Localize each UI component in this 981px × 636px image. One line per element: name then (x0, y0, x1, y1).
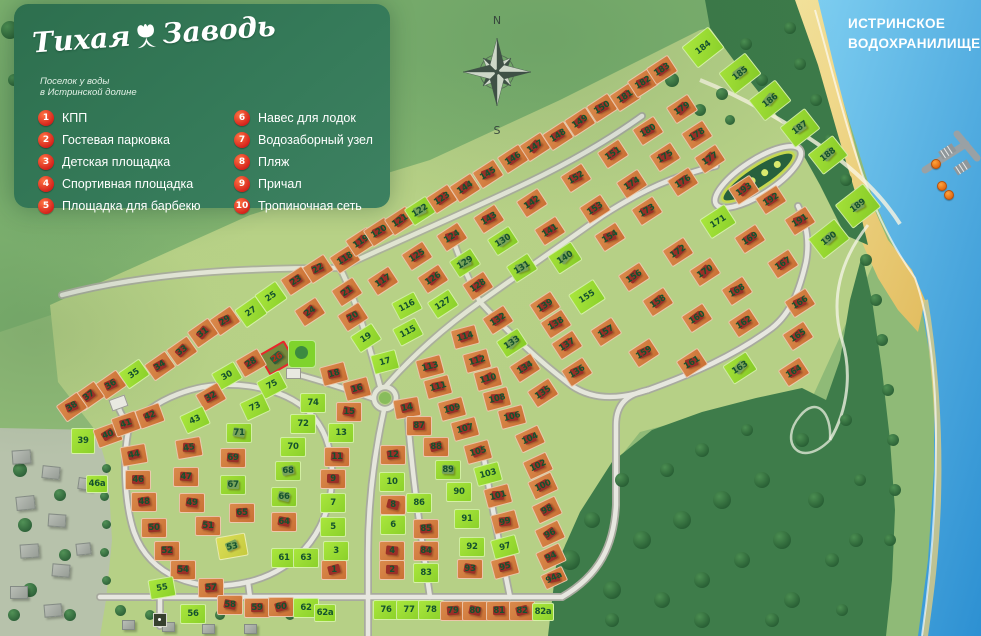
lot-number: 47 (180, 472, 191, 482)
lot-number: 17 (378, 356, 391, 369)
lot-number: 126 (423, 270, 443, 288)
lot-number: 147 (525, 138, 545, 156)
lot-number: 111 (429, 380, 448, 394)
lot-90[interactable]: 90 (446, 482, 472, 502)
tree (810, 94, 822, 106)
lot-12[interactable]: 12 (380, 445, 406, 465)
lot-number: 68 (282, 466, 293, 476)
tree-icon (295, 346, 308, 359)
tree (734, 552, 750, 568)
lot-number: 116 (397, 298, 417, 315)
lot-number: 152 (566, 169, 586, 187)
lot-10[interactable]: 10 (379, 472, 405, 492)
tree (836, 604, 848, 616)
lot-number: 26 (270, 351, 285, 365)
lot-number: 122 (410, 202, 430, 220)
lot-number: 135 (533, 384, 553, 402)
lot-number: 58 (224, 600, 235, 610)
outside-house (51, 563, 70, 578)
tree (102, 520, 111, 529)
lot-3[interactable]: 3 (323, 541, 349, 561)
lot-51[interactable]: 51 (195, 516, 221, 536)
legend-item-label: Спортивная площадка (62, 177, 193, 191)
lot-number: 11 (331, 452, 342, 462)
outside-house (48, 513, 67, 527)
legend-item-5: 5Площадка для барбекю (38, 198, 210, 214)
lot-number: 10 (386, 477, 397, 487)
lot-number: 184 (693, 38, 712, 56)
lot-number: 69 (227, 453, 238, 463)
outside-house (20, 543, 40, 558)
lot-46a[interactable]: 46a (86, 475, 108, 493)
legend-number-badge: 9 (234, 176, 250, 192)
lot-number: 95 (498, 561, 511, 574)
tree (54, 489, 66, 501)
lot-number: 83 (420, 568, 431, 578)
lot-number: 65 (236, 508, 247, 518)
lot-number: 97 (498, 541, 511, 554)
legend-item-10: 10Тропиночная сеть (234, 198, 406, 214)
legend-number-badge: 7 (234, 132, 250, 148)
lot-83[interactable]: 83 (413, 563, 439, 583)
lot-number: 153 (585, 200, 605, 218)
tree (854, 474, 866, 486)
legend-item-3: 3Детская площадка (38, 154, 210, 170)
lot-number: 55 (156, 582, 169, 594)
lot-88[interactable]: 88 (423, 437, 449, 457)
tree (889, 484, 901, 496)
beach-marker-icon (931, 159, 941, 169)
legend-item-label: Гостевая парковка (62, 133, 170, 147)
legend-number-badge: 2 (38, 132, 54, 148)
legend-item-label: КПП (62, 111, 87, 125)
tree (605, 613, 619, 627)
lot-87[interactable]: 87 (406, 416, 432, 436)
tree (584, 512, 600, 528)
tree (784, 592, 800, 608)
outside-house (122, 620, 135, 630)
lot-number: 86 (413, 498, 424, 508)
tree (849, 533, 863, 547)
lot-number: 186 (760, 91, 779, 109)
legend-number-badge: 3 (38, 154, 54, 170)
lot-number: 92 (466, 542, 477, 552)
lot-number: 117 (373, 272, 393, 290)
legend-item-7: 7Водозаборный узел (234, 132, 406, 148)
lot-number: 72 (297, 419, 308, 429)
lot-5[interactable]: 5 (320, 517, 346, 537)
logo-subtitle: Поселок у воды в Истринской долине (40, 76, 137, 98)
lot-62a[interactable]: 62a (314, 604, 336, 622)
lot-number: 133 (502, 334, 522, 352)
lot-13[interactable]: 13 (328, 423, 354, 443)
lot-number: 124 (442, 228, 462, 246)
lot-8[interactable]: 8 (380, 495, 406, 515)
lot-number: 60 (275, 602, 286, 612)
logo-word-1: Тихая (31, 20, 131, 60)
tree (694, 612, 710, 628)
logo-word-2: Заводь (161, 10, 276, 51)
lot-number: 81 (493, 606, 504, 616)
tree (64, 609, 76, 621)
lot-2[interactable]: 2 (379, 560, 405, 580)
tree (860, 254, 872, 266)
lot-92[interactable]: 92 (459, 537, 485, 557)
legend-number-badge: 5 (38, 198, 54, 214)
legend-items: 1КПП2Гостевая парковка3Детская площадка4… (38, 110, 406, 214)
tree (115, 605, 126, 616)
lot-number: 136 (567, 363, 587, 381)
lot-93[interactable]: 93 (457, 559, 483, 579)
lot-number: 27 (244, 305, 259, 320)
lot-63[interactable]: 63 (293, 548, 319, 568)
lot-number: 183 (652, 61, 672, 79)
lot-number: 76 (380, 605, 391, 615)
lot-number: 82 (516, 606, 527, 616)
lot-number: 193 (734, 181, 754, 199)
lot-number: 180 (638, 122, 658, 140)
lot-number: 70 (287, 442, 298, 452)
lot-number: 33 (175, 344, 190, 359)
lot-72[interactable]: 72 (290, 414, 316, 434)
lot-number: 142 (522, 194, 542, 212)
compass-rose: N S (459, 8, 535, 140)
lot-number: 192 (761, 191, 781, 209)
lot-number: 84 (420, 546, 431, 556)
lot-64[interactable]: 64 (271, 512, 297, 532)
beach-marker-icon (944, 190, 954, 200)
lot-number: 52 (161, 546, 172, 556)
lot-number: 109 (443, 402, 462, 416)
lot-number: 120 (369, 223, 389, 241)
lot-number: 167 (773, 255, 793, 273)
parking-icon (286, 368, 301, 379)
lot-number: 104 (520, 431, 539, 447)
tree (725, 115, 735, 125)
lot-number: 12 (387, 450, 398, 460)
lot-number: 48 (138, 497, 149, 507)
lot-number: 88 (430, 442, 441, 452)
lot-number: 13 (335, 428, 346, 438)
lot-number: 156 (624, 268, 644, 286)
lot-number: 51 (202, 521, 213, 531)
lot-49[interactable]: 49 (179, 493, 205, 513)
lot-number: 131 (512, 259, 532, 277)
lot-number: 28 (244, 356, 259, 370)
lot-number: 140 (555, 249, 575, 267)
lot-number: 159 (634, 344, 654, 362)
lot-number: 107 (456, 422, 475, 436)
lot-number: 62 (300, 603, 311, 613)
lot-number: 40 (101, 428, 115, 441)
lot-86[interactable]: 86 (406, 493, 432, 513)
lot-9[interactable]: 9 (320, 469, 346, 489)
lot-number: 19 (359, 331, 374, 346)
lot-number: 71 (233, 428, 244, 438)
lot-number: 165 (788, 327, 808, 345)
lot-85[interactable]: 85 (413, 519, 439, 539)
lot-46[interactable]: 46 (125, 470, 151, 490)
outside-house (202, 624, 215, 634)
tree (740, 38, 752, 50)
lot-number: 32 (204, 390, 219, 404)
lot-number: 21 (340, 285, 355, 300)
lot-67[interactable]: 67 (220, 475, 246, 495)
outside-house (12, 449, 32, 464)
lot-number: 53 (226, 540, 239, 552)
lot-number: 187 (790, 119, 809, 137)
tree (13, 463, 27, 477)
tree (102, 576, 111, 585)
lot-number: 129 (455, 254, 475, 272)
lot-number: 163 (730, 359, 750, 377)
lot-number: 115 (398, 324, 418, 341)
lot-number: 64 (278, 517, 289, 527)
legend-number-badge: 1 (38, 110, 54, 126)
legend-item-label: Навес для лодок (258, 111, 356, 125)
outside-house (43, 603, 62, 618)
outside-house (244, 624, 257, 634)
legend-item-label: Детская площадка (62, 155, 170, 169)
lot-66[interactable]: 66 (271, 487, 297, 507)
legend-number-badge: 10 (234, 198, 250, 214)
tree (825, 553, 839, 567)
lot-number: 125 (407, 247, 427, 265)
lot-number: 150 (592, 99, 612, 117)
lot-52[interactable]: 52 (154, 541, 180, 561)
lot-number: 114 (456, 330, 475, 344)
lot-number: 7 (330, 498, 336, 508)
lot-number: 164 (784, 363, 804, 381)
lot-number: 166 (790, 294, 810, 312)
lot-number: 102 (528, 458, 547, 474)
lot-number: 149 (570, 113, 590, 131)
lot-number: 145 (478, 165, 498, 183)
outside-house (15, 495, 35, 511)
lot-number: 144 (455, 179, 475, 197)
lot-number: 132 (488, 311, 508, 329)
tree (808, 492, 824, 508)
lot-number: 93 (464, 564, 475, 574)
lot-1[interactable]: 1 (321, 560, 347, 580)
lot-65[interactable]: 65 (229, 503, 255, 523)
lot-number: 98 (540, 503, 554, 517)
lot-number: 62a (317, 608, 334, 618)
tree (8, 609, 20, 621)
lot-number: 179 (672, 100, 692, 118)
lot-number: 90 (453, 487, 464, 497)
lot-number: 82a (535, 607, 552, 617)
lot-number: 148 (548, 127, 568, 145)
lot-number: 35 (127, 367, 142, 382)
legend-item-label: Площадка для барбекю (62, 199, 201, 213)
tree (882, 384, 894, 396)
lot-71[interactable]: 71 (226, 423, 252, 443)
lot-58[interactable]: 58 (217, 595, 243, 615)
lot-number: 177 (700, 150, 720, 168)
lot-39[interactable]: 39 (71, 428, 95, 454)
lot-number: 103 (479, 467, 498, 481)
lot-6[interactable]: 6 (380, 515, 406, 535)
tree (773, 531, 791, 549)
lot-number: 45 (183, 442, 196, 454)
tree (603, 581, 621, 599)
lot-number: 105 (469, 445, 488, 459)
lot-number: 189 (848, 197, 867, 215)
lot-80[interactable]: 80 (462, 601, 488, 621)
lot-number: 146 (503, 150, 523, 168)
lot-number: 130 (493, 232, 513, 250)
lot-number: 39 (77, 436, 88, 446)
tree (633, 531, 651, 549)
lot-number: 56 (187, 609, 198, 619)
legend-item-label: Водозаборный узел (258, 133, 373, 147)
legend-panel: Тихая Заводь Поселок у воды в Истринской… (14, 4, 390, 208)
lot-number: 79 (447, 606, 458, 616)
lot-7[interactable]: 7 (320, 493, 346, 513)
legend-item-8: 8Пляж (234, 154, 406, 170)
lot-number: 112 (468, 354, 487, 368)
lot-60[interactable]: 60 (268, 597, 294, 617)
lot-48[interactable]: 48 (131, 492, 157, 512)
lot-number: 171 (708, 212, 728, 230)
lot-47[interactable]: 47 (173, 467, 199, 487)
lot-number: 54 (177, 565, 188, 575)
tree (59, 549, 71, 561)
tree (673, 511, 691, 529)
tree (887, 434, 899, 446)
lot-number: 139 (535, 297, 555, 315)
lot-4[interactable]: 4 (379, 541, 405, 561)
legend-number-badge: 6 (234, 110, 250, 126)
lot-number: 18 (327, 368, 340, 381)
lot-number: 8 (390, 500, 396, 510)
lot-number: 137 (557, 336, 577, 354)
lot-82a[interactable]: 82a (532, 603, 554, 621)
legend-item-label: Причал (258, 177, 302, 191)
lot-74[interactable]: 74 (300, 393, 326, 413)
lot-number: 25 (264, 290, 279, 305)
logo: Тихая Заводь (31, 10, 276, 60)
lot-number: 42 (143, 409, 157, 422)
lot-number: 34 (153, 359, 168, 374)
lot-number: 151 (603, 145, 623, 163)
tree (102, 464, 111, 473)
legend-number-badge: 4 (38, 176, 54, 192)
lot-number: 175 (655, 148, 675, 166)
compass-north-label: N (493, 14, 501, 27)
lot-number: 78 (425, 605, 436, 615)
lot-number: 141 (540, 222, 560, 240)
lot-89[interactable]: 89 (435, 460, 461, 480)
tree (754, 472, 770, 488)
lot-number: 24 (303, 305, 318, 320)
lot-number: 154 (600, 228, 620, 246)
lot-number: 178 (687, 126, 707, 144)
lot-number: 162 (734, 314, 754, 332)
lot-number: 41 (119, 417, 133, 430)
tree (741, 424, 753, 436)
lot-number: 3 (333, 546, 339, 556)
legend-item-6: 6Навес для лодок (234, 110, 406, 126)
lot-50[interactable]: 50 (141, 518, 167, 538)
lot-15[interactable]: 15 (336, 402, 362, 422)
lot-11[interactable]: 11 (324, 447, 350, 467)
lot-54[interactable]: 54 (170, 560, 196, 580)
reservoir-label: ИСТРИНСКОЕ ВОДОХРАНИЛИЩЕ (848, 14, 981, 54)
lot-number: 63 (300, 553, 311, 563)
outside-house (10, 586, 28, 599)
outside-house (41, 465, 60, 480)
lot-69[interactable]: 69 (220, 448, 246, 468)
lot-68[interactable]: 68 (275, 461, 301, 481)
tree (765, 613, 779, 627)
lot-number: 100 (533, 478, 552, 494)
lot-number: 173 (637, 202, 657, 220)
lot-53[interactable]: 53 (215, 532, 249, 560)
lot-number: 49 (186, 498, 197, 508)
lot-56[interactable]: 56 (180, 604, 206, 624)
lot-number: 170 (695, 263, 715, 281)
tree (840, 414, 852, 426)
tree (876, 334, 888, 346)
lot-number: 96 (543, 527, 557, 541)
tree (713, 491, 731, 509)
lot-number: 67 (227, 480, 238, 490)
tree (884, 534, 896, 546)
lot-number: 158 (648, 293, 668, 311)
legend-item-label: Тропиночная сеть (258, 199, 362, 213)
compass-south-label: S (494, 124, 501, 137)
lot-number: 155 (577, 288, 597, 306)
lot-number: 99 (498, 516, 511, 529)
lot-number: 87 (413, 421, 424, 431)
tulip-icon (133, 19, 159, 51)
lot-number: 91 (461, 514, 472, 524)
tree (840, 174, 852, 186)
lot-number: 110 (479, 372, 498, 386)
lot-70[interactable]: 70 (280, 437, 306, 457)
lot-number: 50 (148, 523, 159, 533)
lot-number: 74 (307, 398, 318, 408)
lot-number: 85 (420, 524, 431, 534)
lot-number: 75 (265, 378, 280, 392)
lot-number: 44 (128, 449, 141, 461)
lot-number: 5 (330, 522, 336, 532)
lot-number: 128 (468, 277, 488, 295)
lot-number: 2 (389, 565, 395, 575)
tree (784, 22, 796, 34)
lot-number: 14 (401, 402, 414, 414)
tree (795, 433, 809, 447)
legend-item-9: 9Причал (234, 176, 406, 192)
tree (100, 548, 109, 557)
tree (615, 473, 629, 487)
lot-59[interactable]: 59 (244, 598, 270, 618)
lot-number: 30 (220, 369, 235, 383)
lot-number: 46a (89, 479, 106, 489)
lot-number: 160 (687, 309, 707, 327)
lot-number: 31 (196, 326, 211, 341)
lot-91[interactable]: 91 (454, 509, 480, 529)
lot-number: 1 (331, 565, 337, 575)
lot-84[interactable]: 84 (413, 541, 439, 561)
lot-number: 16 (350, 383, 363, 396)
lot-number: 134 (515, 359, 535, 377)
lot-number: 172 (668, 243, 688, 261)
lot-number: 127 (433, 295, 453, 313)
legend-item-label: Пляж (258, 155, 289, 169)
